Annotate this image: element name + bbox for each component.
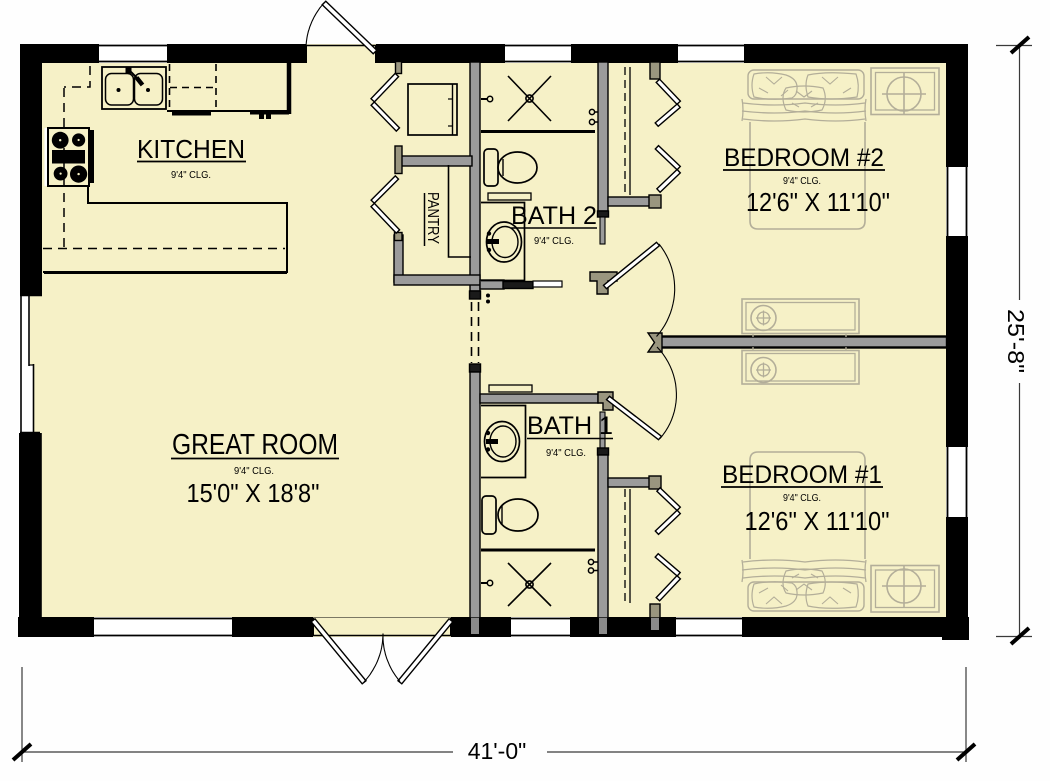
svg-text:BATH 1: BATH 1 (527, 412, 613, 440)
svg-text:BEDROOM #2: BEDROOM #2 (724, 144, 884, 172)
svg-text:9'4" CLG.: 9'4" CLG. (171, 169, 211, 181)
svg-text:25'-8": 25'-8" (1003, 309, 1029, 373)
svg-text:41'-0": 41'-0" (468, 738, 527, 764)
svg-text:9'4" CLG.: 9'4" CLG. (783, 175, 821, 187)
svg-text:15'0" X 18'8": 15'0" X 18'8" (187, 478, 320, 508)
svg-text:KITCHEN: KITCHEN (137, 134, 245, 164)
svg-text:PANTRY: PANTRY (424, 192, 441, 244)
svg-text:GREAT ROOM: GREAT ROOM (172, 429, 338, 461)
svg-text:9'4" CLG.: 9'4" CLG. (783, 492, 821, 504)
svg-text:BATH 2: BATH 2 (511, 202, 597, 230)
svg-text:9'4" CLG.: 9'4" CLG. (534, 235, 574, 247)
svg-text:9'4" CLG.: 9'4" CLG. (546, 447, 586, 459)
svg-text:9'4" CLG.: 9'4" CLG. (234, 465, 274, 477)
svg-text:12'6" X 11'10": 12'6" X 11'10" (746, 187, 890, 217)
svg-text:BEDROOM #1: BEDROOM #1 (722, 461, 882, 489)
svg-text:12'6" X 11'10": 12'6" X 11'10" (745, 506, 890, 536)
